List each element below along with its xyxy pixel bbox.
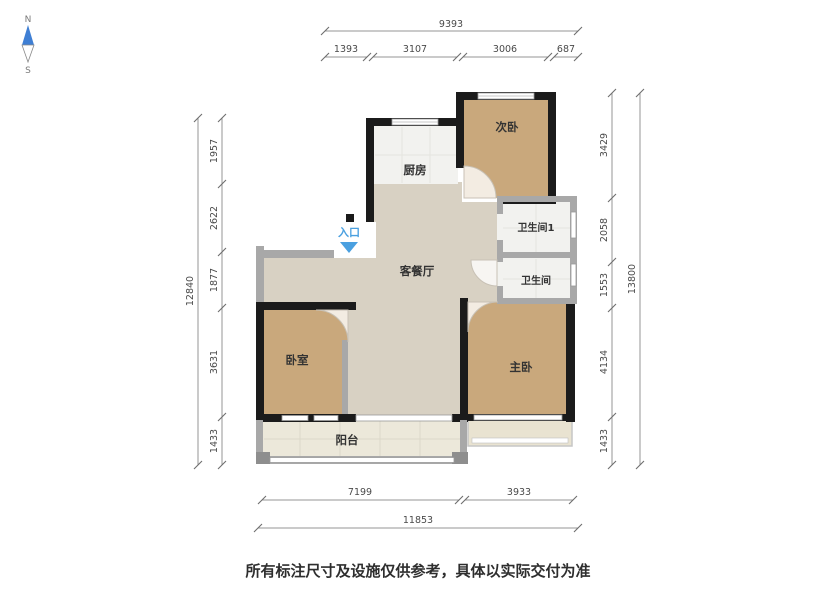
secondary-bedroom-label: 次卧 [496, 120, 519, 134]
master-window [474, 415, 562, 420]
bay-window-glass [472, 438, 568, 443]
corridor-floor [462, 202, 498, 302]
dim-bottom-seg2: 3933 [507, 487, 531, 498]
dim-bottom-seg1: 7199 [348, 487, 372, 498]
wall-cb-left [456, 92, 464, 168]
bedroom-window-1 [282, 416, 308, 421]
door-gap-bathroom1 [497, 214, 503, 240]
dim-top-seg3: 3006 [493, 44, 517, 55]
dim-left-seg2: 2622 [209, 206, 220, 230]
balcony-corner-left [256, 452, 270, 464]
living-dining-label: 客餐厅 [399, 264, 435, 278]
dim-left-seg5: 1433 [209, 429, 220, 453]
wall-bedroom-right [342, 340, 348, 414]
master-bedroom-label: 主卧 [510, 360, 533, 374]
wall-bath-top [497, 196, 577, 202]
wall-bedroom-top [256, 302, 356, 310]
wall-living-bottom-left [342, 414, 356, 422]
bedroom-window-2 [314, 416, 338, 421]
dim-top-seg2: 3107 [403, 44, 427, 55]
bathroom2-label: 卫生间 [521, 274, 551, 287]
kitchen-label: 厨房 [404, 163, 427, 177]
dim-left-seg4: 3631 [209, 350, 220, 374]
dim-left-seg3: 1877 [209, 268, 220, 292]
living-balcony-door-window [356, 415, 452, 421]
dim-right-total: 13800 [627, 264, 638, 294]
dim-right-seg1: 3429 [599, 133, 610, 157]
dim-left-seg1: 1957 [209, 139, 220, 163]
compass-needle-north [22, 25, 34, 45]
bathroom1-label: 卫生间1 [518, 221, 555, 234]
dim-bottom-total: 11853 [403, 515, 433, 526]
wall-bath-mid [497, 252, 577, 258]
living-floor-top [374, 182, 462, 224]
disclaimer-text: 所有标注尺寸及设施仅供参考，具体以实际交付为准 [245, 562, 590, 580]
compass-icon: N S [22, 15, 34, 76]
entrance-label: 入口 [338, 226, 360, 239]
wall-entry-top [256, 250, 334, 258]
wall-bath-left [497, 196, 503, 304]
compass-north-label: N [25, 15, 32, 25]
bathroom1-window [571, 212, 576, 238]
bathroom2-window [571, 264, 576, 286]
wall-cb-right [548, 92, 556, 202]
dim-right-seg5: 1433 [599, 429, 610, 453]
floorplan-page: N S [0, 0, 813, 604]
entry-floor [262, 254, 334, 306]
dim-right-seg2: 2058 [599, 218, 610, 242]
dim-right-seg3: 1553 [599, 273, 610, 297]
compass-needle-south [22, 45, 34, 62]
balcony-label: 阳台 [336, 433, 359, 447]
dim-left-total: 12840 [185, 276, 196, 306]
floorplan-svg: N S [0, 0, 813, 604]
dim-right-seg4: 4134 [599, 350, 610, 374]
door-gap-bathroom2 [497, 262, 503, 286]
dim-top-seg4: 687 [557, 44, 575, 55]
wall-master-right [566, 298, 575, 422]
wall-bath-bottom [497, 298, 577, 304]
master-bedroom-floor [468, 302, 566, 416]
balcony-window-band [270, 458, 454, 463]
dim-top-seg1: 1393 [334, 44, 358, 55]
wall-kitchen-left [366, 118, 374, 222]
dim-top-total: 9393 [439, 19, 463, 30]
wall-master-left [460, 298, 468, 422]
wall-bedroom-left [256, 302, 264, 422]
compass-south-label: S [25, 66, 31, 76]
bedroom-label: 卧室 [286, 353, 309, 367]
